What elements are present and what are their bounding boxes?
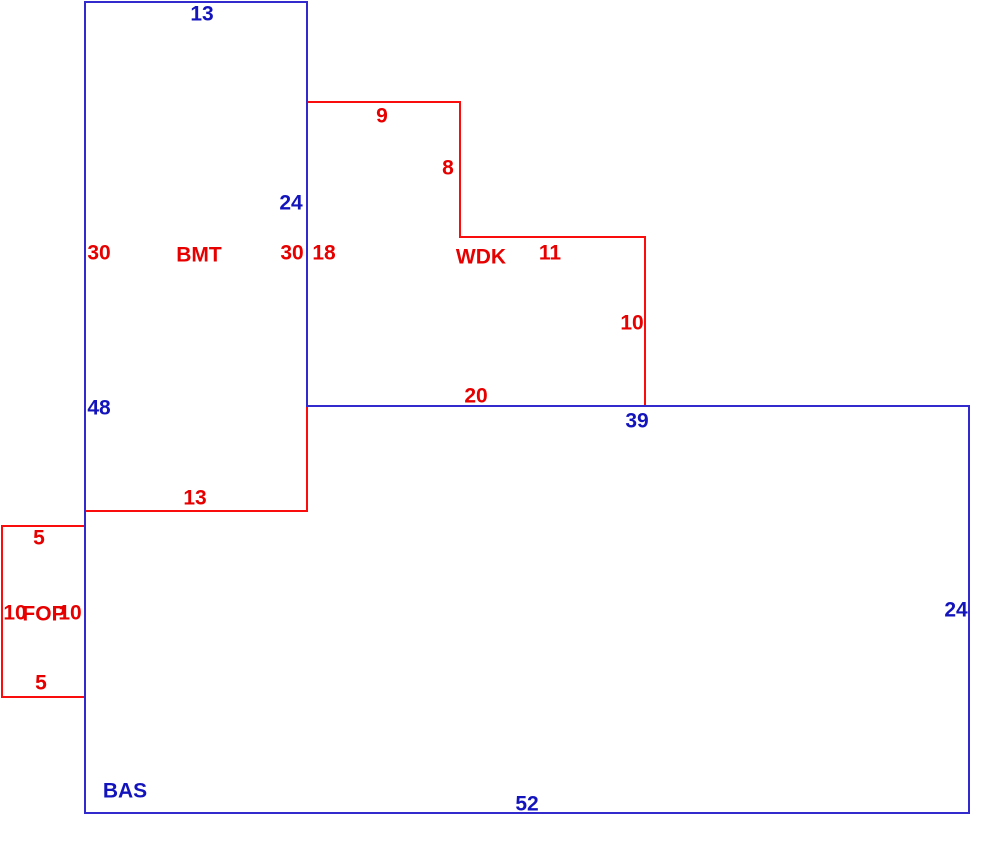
- area-label-bmt: BMT: [176, 245, 222, 266]
- dim-fop-bottom: 5: [35, 673, 47, 694]
- dim-bmt-right: 30: [280, 243, 303, 264]
- sketch-canvas: [0, 0, 1000, 858]
- dim-wdk-upper-right: 8: [442, 158, 454, 179]
- dim-bas-upper-right-side: 24: [279, 193, 302, 214]
- dim-wdk-step: 11: [539, 243, 561, 264]
- floor-plan-sketch: 13 24 48 39 24 52 BAS 30 BMT 30 13 18 9 …: [0, 0, 1000, 858]
- dim-fop-right: 10: [58, 603, 81, 624]
- dim-fop-top: 5: [33, 528, 45, 549]
- dim-bas-left-side: 48: [87, 398, 110, 419]
- bas-outline: [85, 2, 969, 813]
- dim-bas-inner-top: 39: [625, 411, 648, 432]
- dim-bas-bottom: 52: [515, 794, 538, 815]
- dim-wdk-lower-right: 10: [620, 313, 643, 334]
- dim-bmt-left: 30: [87, 243, 110, 264]
- dim-bmt-bottom: 13: [183, 488, 206, 509]
- dim-bas-right-side: 24: [944, 600, 967, 621]
- area-label-wdk: WDK: [456, 247, 506, 268]
- dim-wdk-left: 18: [312, 243, 335, 264]
- dim-wdk-bottom: 20: [464, 386, 487, 407]
- dim-wdk-top: 9: [376, 106, 388, 127]
- dim-bas-top-width: 13: [190, 4, 213, 25]
- area-label-bas: BAS: [103, 781, 147, 802]
